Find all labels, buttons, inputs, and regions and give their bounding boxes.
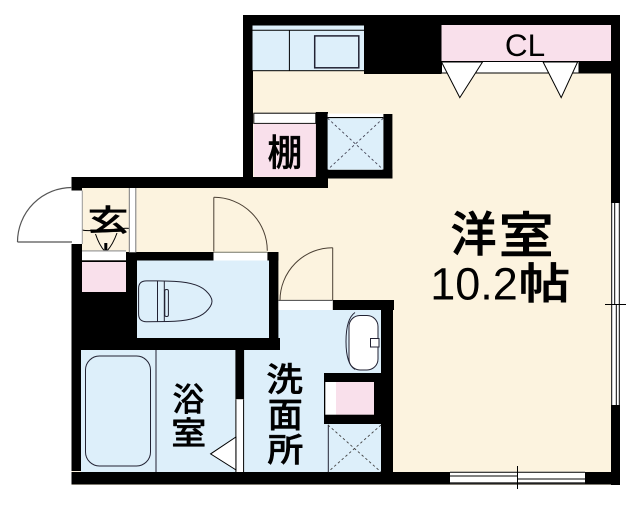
svg-text:CL: CL	[505, 27, 545, 63]
svg-text:10.2: 10.2	[430, 259, 518, 310]
